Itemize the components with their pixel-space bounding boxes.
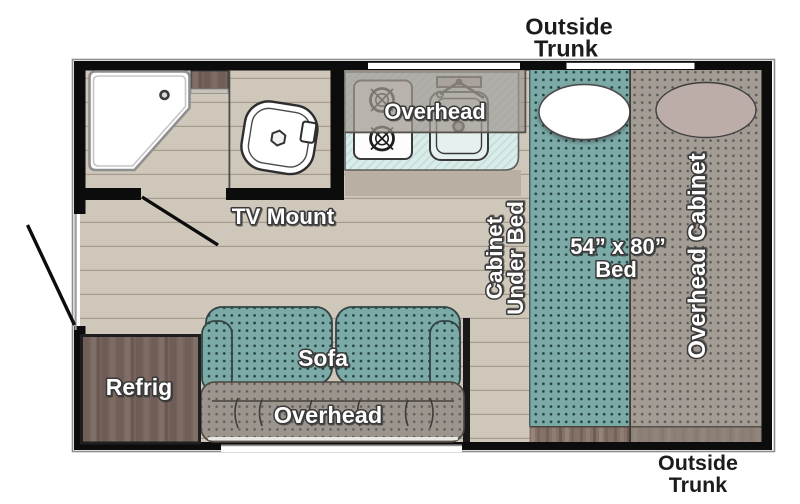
svg-text:Bed: Bed (595, 257, 637, 282)
svg-text:Overhead Cabinet: Overhead Cabinet (684, 153, 711, 358)
svg-text:Sofa: Sofa (298, 345, 348, 371)
svg-text:TV Mount: TV Mount (232, 204, 335, 229)
svg-text:Under Bed: Under Bed (503, 201, 528, 315)
svg-text:Trunk: Trunk (534, 36, 599, 62)
svg-text:Refrig: Refrig (106, 374, 172, 400)
svg-text:Trunk: Trunk (669, 473, 728, 497)
svg-text:54” x 80”: 54” x 80” (570, 234, 665, 259)
svg-text:Overhead: Overhead (274, 402, 382, 428)
svg-text:Outside: Outside (658, 451, 738, 475)
svg-text:Overhead: Overhead (384, 99, 486, 124)
